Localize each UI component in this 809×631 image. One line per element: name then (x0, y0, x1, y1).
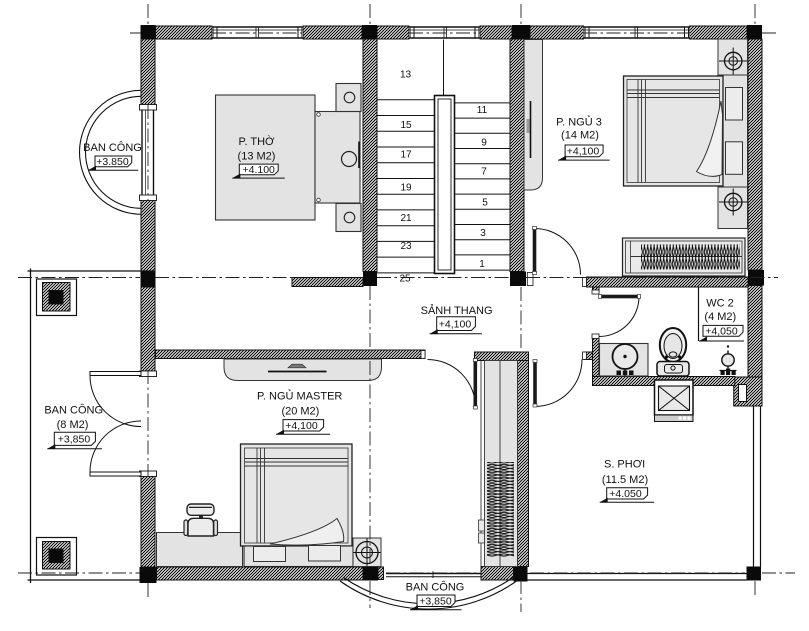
svg-text:SẢNH THANG: SẢNH THANG (421, 304, 493, 317)
svg-text:25: 25 (399, 273, 411, 284)
svg-text:+4,100: +4,100 (285, 420, 318, 432)
svg-text:11: 11 (477, 105, 488, 116)
svg-text:BAN CÔNG: BAN CÔNG (406, 581, 465, 594)
svg-text:P. THỜ: P. THỜ (239, 135, 275, 148)
svg-text:1: 1 (479, 259, 485, 270)
svg-text:21: 21 (400, 213, 412, 224)
svg-text:P. NGỦ 3: P. NGỦ 3 (556, 116, 602, 129)
svg-text:S. PHƠI: S. PHƠI (604, 459, 645, 471)
svg-text:(14 M2): (14 M2) (561, 130, 599, 142)
svg-text:+4,100: +4,100 (567, 146, 600, 158)
svg-text:+3.850: +3.850 (96, 156, 129, 168)
svg-text:7: 7 (481, 167, 487, 178)
svg-text:(20 M2): (20 M2) (281, 406, 319, 418)
svg-text:(13 M2): (13 M2) (238, 150, 276, 162)
svg-text:13: 13 (400, 70, 412, 81)
svg-text:+4.100: +4.100 (242, 164, 275, 176)
svg-text:(11.5 M2): (11.5 M2) (602, 474, 648, 486)
svg-text:15: 15 (400, 120, 412, 131)
svg-text:3: 3 (480, 228, 486, 239)
svg-text:(8 M2): (8 M2) (57, 419, 89, 431)
svg-text:+3,850: +3,850 (419, 596, 452, 608)
svg-text:19: 19 (400, 183, 412, 194)
svg-text:(4 M2): (4 M2) (704, 311, 736, 323)
svg-text:+4,100: +4,100 (439, 319, 472, 331)
svg-text:+4.050: +4.050 (609, 488, 642, 500)
svg-text:BAN CÔNG: BAN CÔNG (83, 141, 142, 154)
svg-text:5: 5 (482, 197, 488, 208)
svg-text:+4,050: +4,050 (705, 325, 738, 337)
svg-text:WC 2: WC 2 (706, 298, 734, 310)
svg-text:9: 9 (481, 137, 487, 148)
svg-text:17: 17 (400, 150, 412, 161)
svg-text:P. NGỦ MASTER: P. NGỦ MASTER (257, 390, 342, 403)
svg-text:BAN CÔNG: BAN CÔNG (44, 404, 103, 417)
svg-text:+3,850: +3,850 (58, 433, 91, 445)
svg-text:23: 23 (400, 241, 412, 252)
